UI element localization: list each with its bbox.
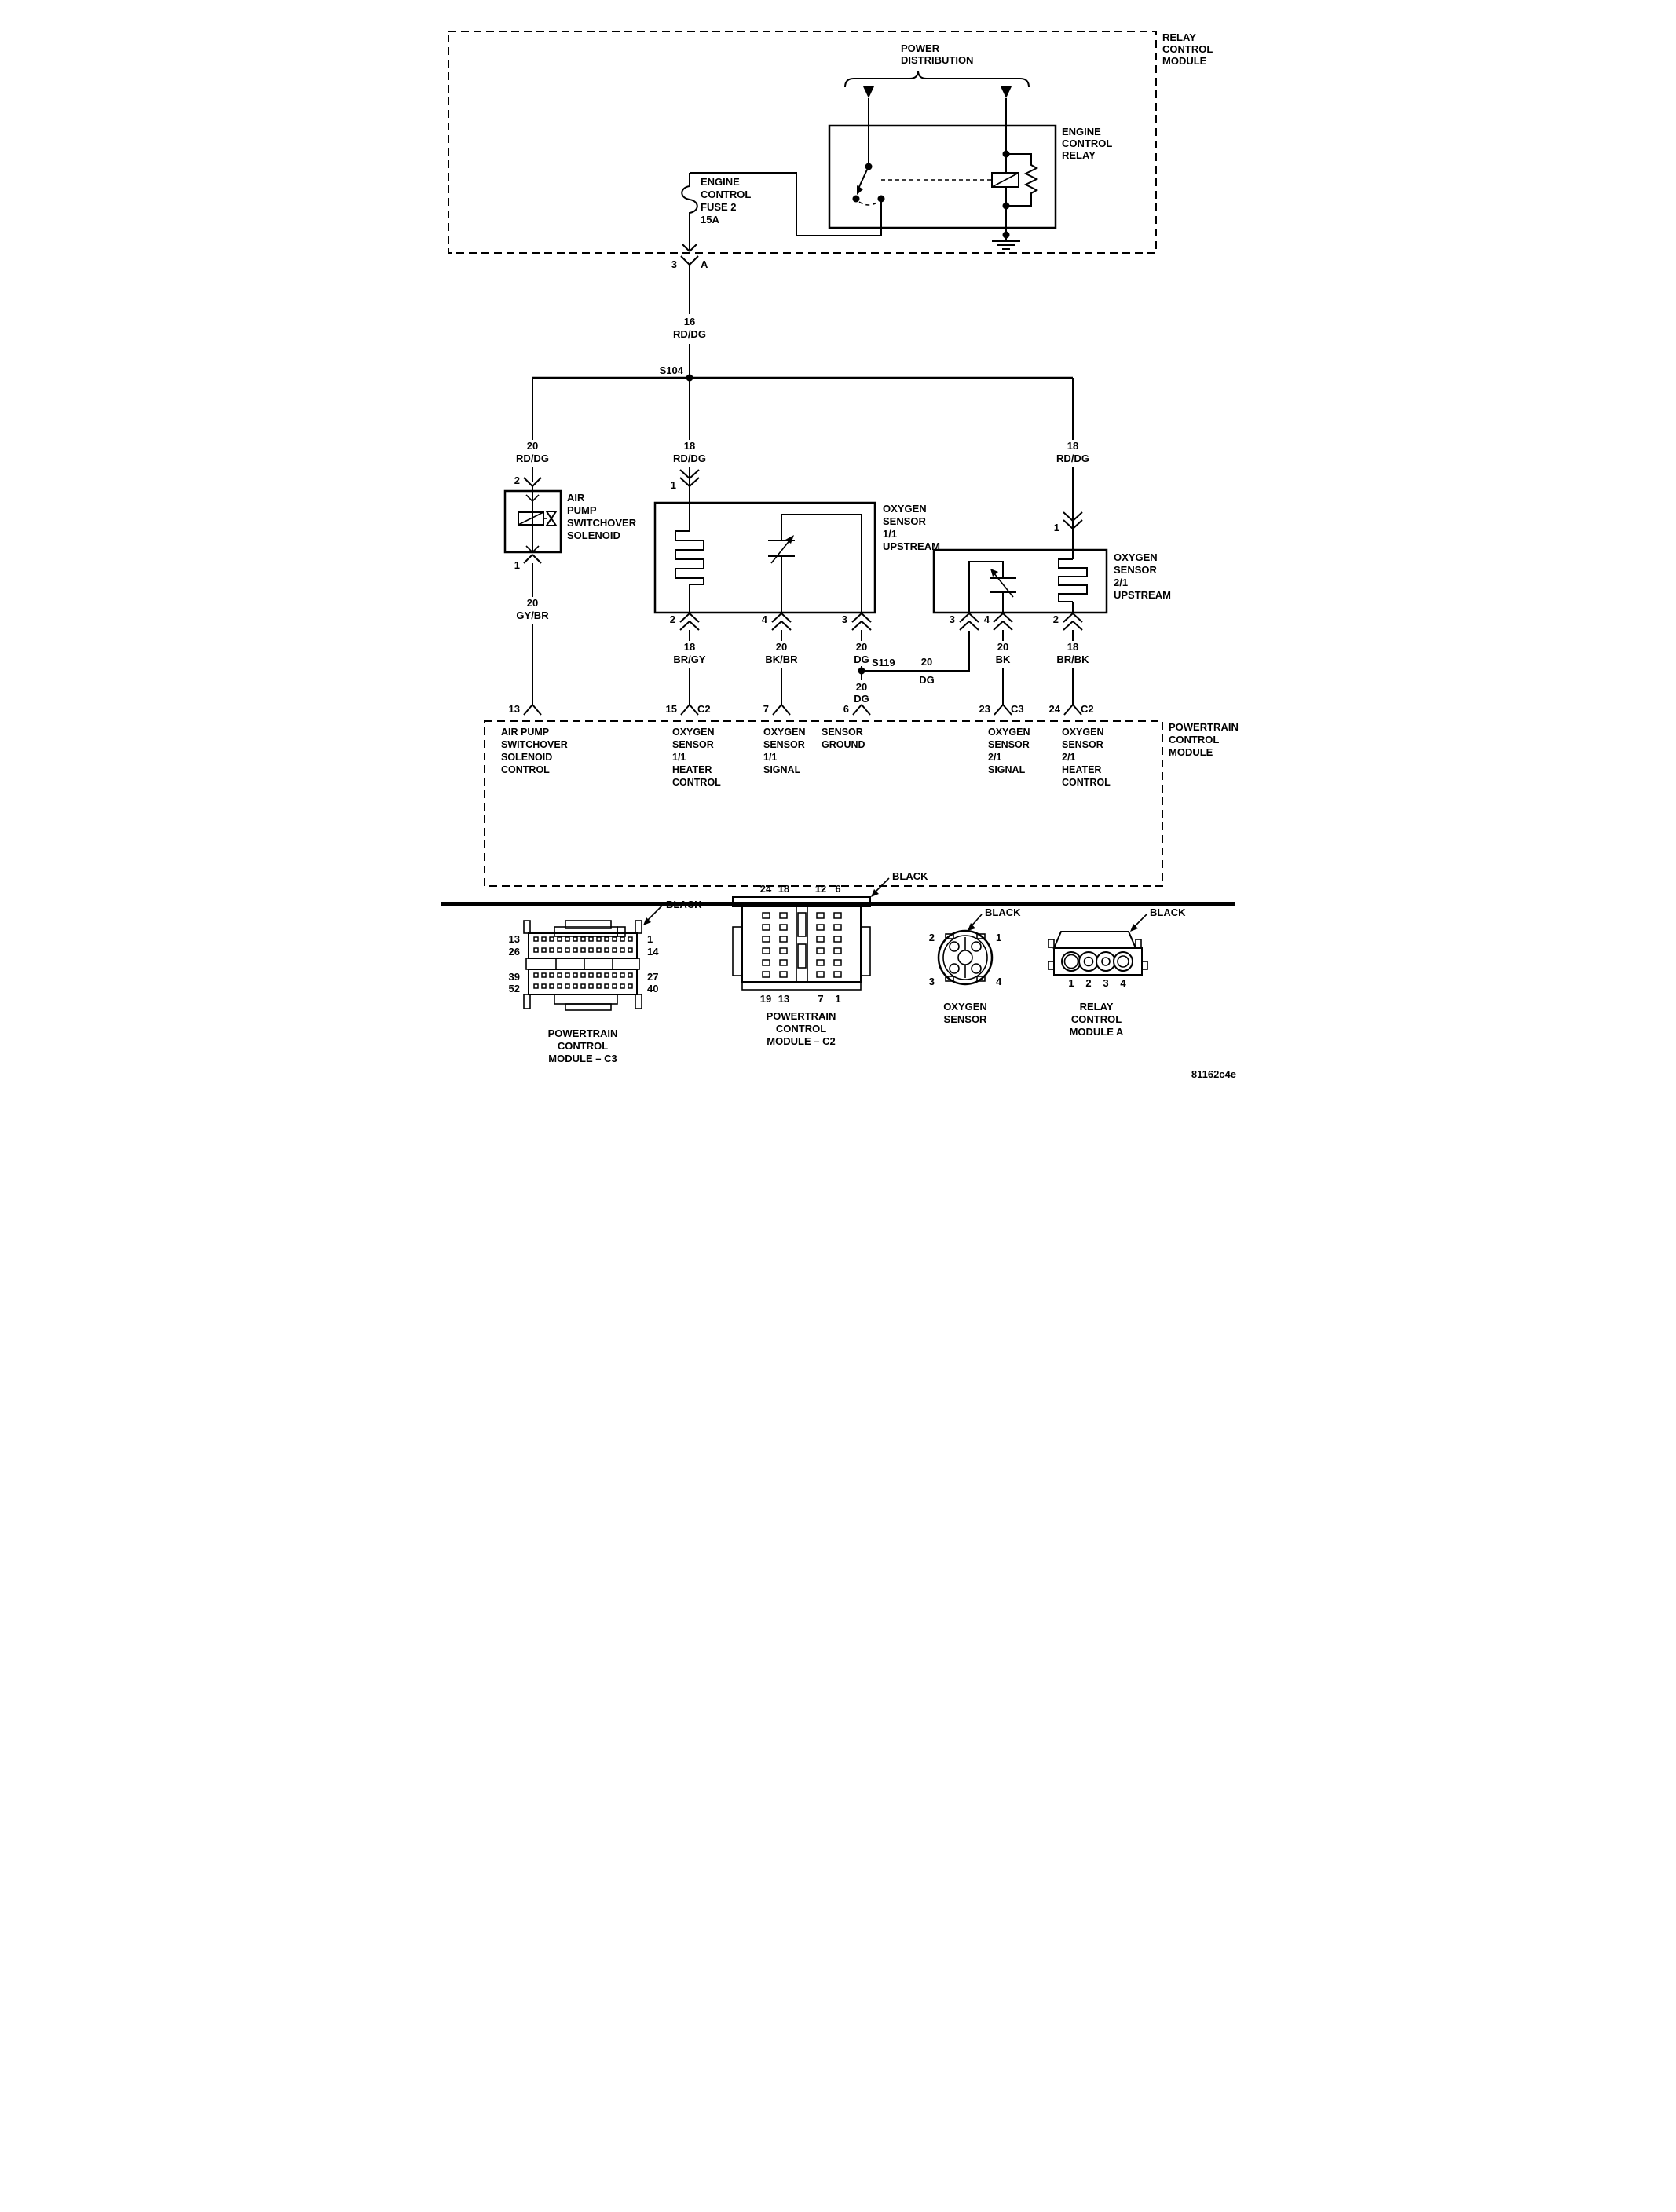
double-chevron-icon (852, 613, 871, 630)
svg-text:CONTROL: CONTROL (501, 764, 550, 775)
c2-caption: POWERTRAIN (766, 1010, 836, 1022)
power-distribution-label: POWER (901, 42, 940, 54)
pin-square (558, 937, 562, 941)
double-chevron-icon (680, 613, 699, 630)
double-chevron-icon (1063, 613, 1082, 630)
relay-coil-bottom-junction (1002, 203, 1009, 210)
pin-square (834, 913, 841, 918)
c3-pin-52: 52 (508, 983, 519, 994)
pcm-function-o2-11-heater: OXYGEN SENSOR 1/1 HEATER CONTROL (672, 727, 721, 788)
pin-square (628, 937, 632, 941)
rcm-label-line: MODULE (1162, 55, 1207, 67)
pin-1: 1 (670, 479, 675, 491)
c2-caption: MODULE – C2 (767, 1035, 835, 1047)
pin-square (581, 984, 585, 988)
c2-pin-24: 24 (759, 883, 771, 895)
o2-color-label: BLACK (985, 906, 1021, 918)
pin-square (763, 972, 770, 977)
pcm-pin-13: 13 (508, 703, 519, 715)
svg-text:SENSOR: SENSOR (988, 739, 1030, 750)
wire-color: DG (919, 674, 935, 686)
relay-switch-pivot (865, 163, 872, 170)
pcm-conn-c3: C3 (1011, 703, 1024, 715)
pin-square (565, 948, 569, 952)
pin-square (628, 948, 632, 952)
svg-text:2/1: 2/1 (1062, 752, 1075, 763)
c3-caption: POWERTRAIN (547, 1027, 617, 1039)
pin-square (589, 948, 593, 952)
o2-sensor-21-box (934, 550, 1107, 613)
fuse-label-line: CONTROL (701, 189, 751, 200)
pin-square (534, 937, 538, 941)
wire-gauge: 18 (683, 641, 694, 653)
pin-square (817, 948, 824, 954)
pin-square (613, 984, 617, 988)
wire-gauge: 20 (855, 641, 866, 653)
c3-pin-13: 13 (508, 933, 519, 945)
pin-square (817, 972, 824, 977)
wire-16-rddg: 16 RD/DG (673, 265, 706, 378)
rcma-color-label: BLACK (1150, 906, 1186, 918)
fuse-label-line: FUSE 2 (701, 201, 737, 213)
pcm-function-sensor-ground: SENSOR GROUND (822, 727, 865, 750)
svg-text:SOLENOID: SOLENOID (501, 752, 552, 763)
air-pump-label-line: AIR (567, 492, 585, 504)
double-chevron-icon (994, 613, 1012, 630)
pcm-pin-6: 6 (843, 703, 848, 715)
pin-square (550, 937, 554, 941)
pin-square (605, 937, 609, 941)
pin-2: 2 (514, 474, 519, 486)
o2-caption: SENSOR (943, 1013, 987, 1025)
o2-pin-4: 4 (996, 976, 1002, 987)
pin-square (558, 984, 562, 988)
pin-1: 1 (1053, 522, 1059, 533)
pin-square (565, 937, 569, 941)
o2-11-label-line: OXYGEN (883, 503, 927, 515)
pin-square (534, 948, 538, 952)
c3-mid-band (526, 958, 639, 969)
svg-text:2/1: 2/1 (988, 752, 1001, 763)
pcm-function-o2-21-signal: OXYGEN SENSOR 2/1 SIGNAL (988, 727, 1030, 775)
svg-text:SWITCHOVER: SWITCHOVER (501, 739, 568, 750)
pin-square (597, 984, 601, 988)
pin-square (834, 936, 841, 942)
svg-text:HEATER: HEATER (1062, 764, 1101, 775)
pcm-pin-y-icon (681, 705, 698, 715)
pin-square (780, 972, 787, 977)
pin-square (834, 972, 841, 977)
relay-switch-arm (858, 170, 867, 189)
rcma-pin-4: 4 (1120, 977, 1126, 989)
pin-square (589, 984, 593, 988)
pin-4: 4 (983, 613, 990, 625)
rcm-label-line: CONTROL (1162, 43, 1213, 55)
pcm-pin-23: 23 (979, 703, 990, 715)
heater-element-icon (1059, 559, 1087, 602)
svg-text:OXYGEN: OXYGEN (672, 727, 715, 738)
connector-chevron-icon (524, 555, 541, 563)
wire-gauge: 18 (1067, 641, 1078, 653)
pin-square (620, 973, 624, 977)
pin-square (558, 973, 562, 977)
power-distribution-label: DISTRIBUTION (901, 54, 973, 66)
c2-pin-19: 19 (759, 993, 770, 1005)
o2-caption: OXYGEN (943, 1001, 987, 1013)
relay-resistor (1006, 154, 1037, 206)
double-chevron-icon (960, 613, 979, 630)
pin-square (558, 948, 562, 952)
svg-text:SENSOR: SENSOR (822, 727, 863, 738)
power-distribution: POWER DISTRIBUTION (845, 42, 1029, 98)
wire-color: BR/GY (673, 654, 706, 665)
pin-square (550, 984, 554, 988)
pin-square (620, 937, 624, 941)
pin-square (542, 984, 546, 988)
powertrain-control-module-box: POWERTRAIN CONTROL MODULE AIR PUMP SWITC… (485, 721, 1239, 886)
wire-color: BK (995, 654, 1010, 665)
rcma-caption: CONTROL (1070, 1013, 1121, 1025)
wire-gauge: 16 (683, 316, 694, 328)
c3-caption: CONTROL (557, 1040, 607, 1052)
c3-pin-grid (534, 937, 632, 988)
relay-contact-a (852, 196, 859, 203)
fuse-label-line: 15A (701, 214, 719, 225)
svg-text:SIGNAL: SIGNAL (988, 764, 1026, 775)
c3-pin-1: 1 (647, 933, 653, 945)
wire-color: DG (854, 654, 869, 665)
brace (845, 71, 1029, 87)
pcm-label-line: MODULE (1169, 746, 1213, 758)
wire-gauge: 20 (526, 440, 537, 452)
pin-square (780, 960, 787, 965)
pcm-pin-y-icon (1064, 705, 1081, 715)
pin-square (542, 948, 546, 952)
pin-square (834, 960, 841, 965)
air-pump-label-line: SOLENOID (567, 529, 620, 541)
double-chevron-icon (772, 613, 791, 630)
c3-caption: MODULE – C3 (548, 1053, 617, 1064)
svg-text:CONTROL: CONTROL (1062, 777, 1111, 788)
pcm-function-air-pump: AIR PUMP SWITCHOVER SOLENOID CONTROL (501, 727, 568, 775)
rcma-pin-1: 1 (1068, 977, 1074, 989)
rcm-a-connector-view: 1 2 3 4 BLACK RELAY CONTROL MODULE A (1048, 906, 1186, 1038)
svg-text:AIR PUMP: AIR PUMP (501, 727, 549, 738)
pin-4: 4 (761, 613, 767, 625)
o2-sensor-11-box (655, 503, 875, 613)
o2-pin-1: 1 (996, 932, 1001, 943)
pcm-c2-connector-view: 24 18 12 6 19 13 7 1 BLACK POWERTRAIN CO… (733, 870, 928, 1047)
pin-square (628, 984, 632, 988)
pcm-c3-connector-view: 13 26 39 52 1 14 27 40 BLACK POWERTRAIN … (508, 899, 702, 1064)
pin-square (780, 913, 787, 918)
variable-arrow-icon (990, 569, 998, 577)
heater-element-icon (675, 531, 704, 584)
rcma-pin-2: 2 (1085, 977, 1091, 989)
c3-pin-14: 14 (647, 946, 659, 958)
pin-square (589, 937, 593, 941)
air-pump-branch: 20 RD/DG 2 AIR PUMP SWITCHOVER SOLENOID (505, 378, 637, 715)
pin-square (817, 913, 824, 918)
wire-color: BR/BK (1056, 654, 1089, 665)
c3-pin-26: 26 (508, 946, 519, 958)
pin-square (834, 948, 841, 954)
variable-arrow-icon (785, 535, 794, 544)
pin-square (597, 973, 601, 977)
pin-square (763, 948, 770, 954)
svg-text:SENSOR: SENSOR (1062, 739, 1103, 750)
connector-cavity-a: A (701, 258, 708, 270)
svg-text:1/1: 1/1 (763, 752, 777, 763)
pin-square (573, 973, 577, 977)
pin-square (763, 913, 770, 918)
rcma-pin-3: 3 (1103, 977, 1108, 989)
pin-square (763, 960, 770, 965)
o2-21-label-line: UPSTREAM (1114, 589, 1171, 601)
pin-square (534, 973, 538, 977)
pin-square (613, 937, 617, 941)
relay-label-line: RELAY (1062, 149, 1096, 161)
c2-pin-12: 12 (814, 883, 825, 895)
wire-color: RD/DG (673, 452, 706, 464)
pcm-conn-c2: C2 (697, 703, 711, 715)
pcm-conn-c2: C2 (1081, 703, 1094, 715)
c2-caption: CONTROL (775, 1023, 825, 1035)
pin-square (628, 973, 632, 977)
pcm-pin-y-icon (853, 705, 870, 715)
pin-square (763, 925, 770, 930)
pin-square (597, 948, 601, 952)
svg-text:HEATER: HEATER (672, 764, 712, 775)
s104-label: S104 (659, 364, 683, 376)
relay-coil-diagonal (992, 173, 1019, 187)
pin-3: 3 (841, 613, 847, 625)
wire-gauge: 20 (920, 656, 931, 668)
svg-text:GROUND: GROUND (822, 739, 865, 750)
connector-pin-3: 3 (671, 258, 676, 270)
wire-gauge: 20 (855, 681, 866, 693)
pin-square (605, 984, 609, 988)
pcm-function-o2-21-heater: OXYGEN SENSOR 2/1 HEATER CONTROL (1062, 727, 1111, 788)
relay-label-line: ENGINE (1062, 126, 1101, 137)
svg-text:OXYGEN: OXYGEN (1062, 727, 1104, 738)
svg-text:SENSOR: SENSOR (763, 739, 805, 750)
svg-text:CONTROL: CONTROL (672, 777, 721, 788)
pin-square (620, 984, 624, 988)
pcm-label-line: POWERTRAIN (1169, 721, 1239, 733)
s119-label: S119 (872, 657, 895, 668)
ground-icon (992, 241, 1020, 249)
pin-square (817, 936, 824, 942)
o2-11-label-line: 1/1 (883, 528, 897, 540)
wire-color: DG (854, 693, 869, 705)
c2-pin-7: 7 (818, 993, 823, 1005)
pin-square (573, 984, 577, 988)
wire-gauge: 18 (1067, 440, 1078, 452)
relay-contact-arc (859, 202, 878, 205)
o2-pin-2: 2 (928, 932, 934, 943)
power-feed-arrow-icon (1001, 86, 1012, 98)
o2-11-label-line: SENSOR (883, 515, 927, 527)
o2-pin-3: 3 (928, 976, 934, 987)
c3-color-label: BLACK (666, 899, 702, 910)
power-feed-arrow-icon (863, 86, 874, 98)
engine-control-relay: ENGINE CONTROL RELAY (690, 98, 1112, 249)
o2-21-label-line: 2/1 (1114, 577, 1128, 588)
pcm-pin-24: 24 (1048, 703, 1060, 715)
pin-square (597, 937, 601, 941)
fuse-label-line: ENGINE (701, 176, 740, 188)
wire-color: RD/DG (673, 328, 706, 340)
pin-square (581, 948, 585, 952)
c2-color-label: BLACK (892, 870, 928, 882)
pin-square (817, 960, 824, 965)
pin-2: 2 (669, 613, 675, 625)
diagram-code: 81162c4e (1191, 1068, 1235, 1080)
pin-square (834, 925, 841, 930)
pin-square (817, 925, 824, 930)
pin-square (620, 948, 624, 952)
pin-square (550, 973, 554, 977)
wire-color: RD/DG (516, 452, 549, 464)
wire-gauge: 20 (997, 641, 1008, 653)
wire-gauge: 20 (775, 641, 786, 653)
valve-icon (547, 511, 556, 526)
c2-pin-13: 13 (778, 993, 789, 1005)
air-pump-label-line: SWITCHOVER (567, 517, 637, 529)
o2-connector-view: 2 1 3 4 BLACK OXYGEN SENSOR (928, 906, 1020, 1025)
pin-square (581, 937, 585, 941)
pin-square (605, 973, 609, 977)
pcm-pin-y-icon (773, 705, 790, 715)
pcm-pin-7: 7 (763, 703, 768, 715)
rcm-label-line: RELAY (1162, 31, 1196, 43)
wire-gauge: 20 (526, 597, 537, 609)
pin-square (534, 984, 538, 988)
c2-pin-1: 1 (835, 993, 840, 1005)
pin-square (581, 973, 585, 977)
rcma-caption: MODULE A (1069, 1026, 1123, 1038)
sense-element (969, 562, 1016, 613)
o2-21-label-line: SENSOR (1114, 564, 1158, 576)
pin-square (613, 948, 617, 952)
pin-square (780, 925, 787, 930)
wire-gauge: 18 (683, 440, 694, 452)
rcma-caption: RELAY (1079, 1001, 1113, 1013)
pin-square (573, 948, 577, 952)
pin-square (780, 948, 787, 954)
svg-text:SIGNAL: SIGNAL (763, 764, 801, 775)
pin-square (605, 948, 609, 952)
wire-color: GY/BR (516, 610, 549, 621)
black-arrow-icon (968, 923, 975, 931)
o2-21-label-line: OXYGEN (1114, 551, 1158, 563)
c3-pin-27: 27 (647, 971, 658, 983)
pin-2: 2 (1052, 613, 1058, 625)
wiring-diagram-page: RELAY CONTROL MODULE POWER DISTRIBUTION … (419, 0, 1257, 1106)
svg-text:SENSOR: SENSOR (672, 739, 714, 750)
splice-s104: S104 (532, 364, 1073, 382)
pcm-pin-y-icon (524, 705, 541, 715)
o2-sensor-11-branch: 18 RD/DG 1 OXYGEN SENSOR 1/1 UPSTREAM 2 (655, 378, 969, 715)
c2-pin-6: 6 (835, 883, 840, 895)
svg-text:OXYGEN: OXYGEN (988, 727, 1030, 738)
svg-text:1/1: 1/1 (672, 752, 686, 763)
svg-text:OXYGEN: OXYGEN (763, 727, 806, 738)
sense-element (768, 515, 862, 613)
pin-square (565, 984, 569, 988)
pin-1: 1 (514, 559, 519, 571)
wiring-diagram: RELAY CONTROL MODULE POWER DISTRIBUTION … (419, 0, 1257, 1106)
pin-square (589, 973, 593, 977)
pin-square (763, 936, 770, 942)
wire-color: RD/DG (1056, 452, 1089, 464)
pcm-label-line: CONTROL (1169, 734, 1219, 745)
relay-contact-b (877, 196, 884, 203)
pin-square (565, 973, 569, 977)
pin-square (542, 973, 546, 977)
c3-pin-40: 40 (647, 983, 658, 994)
pin-square (542, 937, 546, 941)
pcm-function-o2-11-signal: OXYGEN SENSOR 1/1 SIGNAL (763, 727, 806, 775)
air-pump-label-line: PUMP (567, 504, 597, 516)
pcm-pin-y-icon (994, 705, 1012, 715)
pin-square (780, 936, 787, 942)
fuse-symbol (682, 173, 697, 250)
pcm-pin-15: 15 (665, 703, 676, 715)
wire-color: BK/BR (765, 654, 798, 665)
c2-pin-18: 18 (778, 883, 789, 895)
pin-square (573, 937, 577, 941)
c3-pin-39: 39 (508, 971, 519, 983)
engine-control-fuse: ENGINE CONTROL FUSE 2 15A 3 A (671, 173, 751, 270)
o2-11-label-line: UPSTREAM (883, 540, 940, 552)
pin-square (550, 948, 554, 952)
relay-label-line: CONTROL (1062, 137, 1112, 149)
pin-square (613, 973, 617, 977)
pin-3: 3 (949, 613, 954, 625)
